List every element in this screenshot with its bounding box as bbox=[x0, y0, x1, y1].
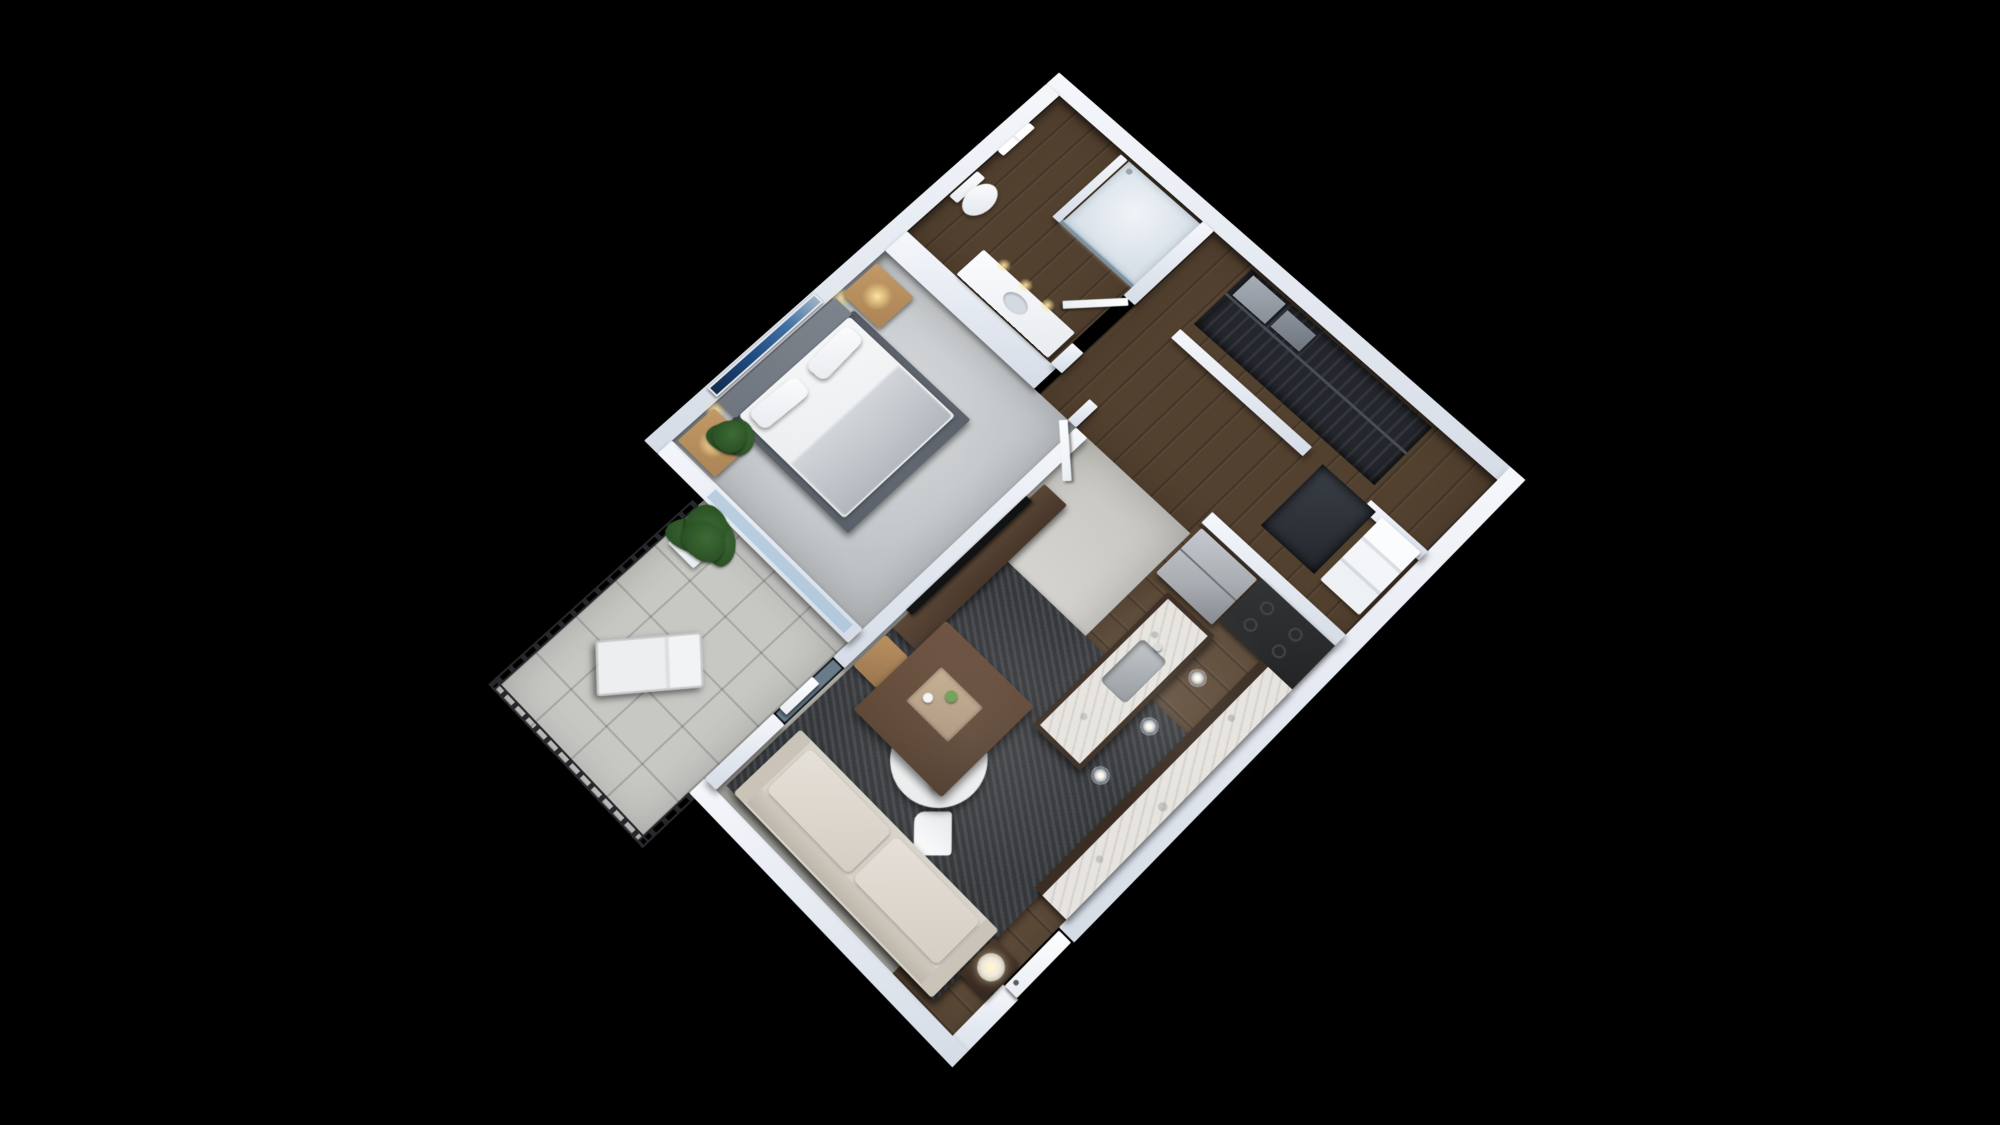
render-canvas bbox=[0, 0, 2000, 1125]
floor-plan-scene bbox=[486, 72, 1526, 1067]
lounge-chair bbox=[596, 632, 704, 696]
bathroom-door-leaf bbox=[1063, 298, 1129, 309]
